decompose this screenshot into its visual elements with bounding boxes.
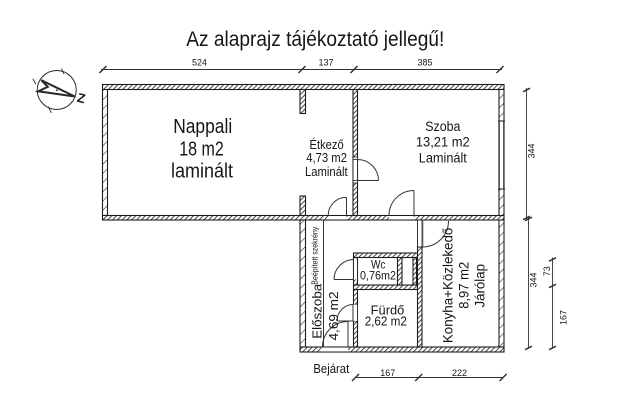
svg-text:167: 167 xyxy=(559,310,569,325)
svg-text:Konyha+Közlekedő: Konyha+Közlekedő xyxy=(441,228,456,344)
svg-text:4,73 m2: 4,73 m2 xyxy=(306,151,347,165)
svg-text:524: 524 xyxy=(192,58,207,68)
svg-text:73: 73 xyxy=(542,266,552,276)
svg-text:385: 385 xyxy=(417,58,432,68)
svg-text:344: 344 xyxy=(527,143,537,158)
svg-text:0,76m2: 0,76m2 xyxy=(360,270,396,282)
svg-text:Előszoba: Előszoba xyxy=(310,283,325,339)
svg-text:Bejárat: Bejárat xyxy=(313,362,349,376)
svg-text:Laminált: Laminált xyxy=(419,150,467,165)
svg-text:13,21 m2: 13,21 m2 xyxy=(416,135,470,150)
svg-text:4,69 m2: 4,69 m2 xyxy=(326,292,341,341)
svg-text:8,97 m2: 8,97 m2 xyxy=(457,262,472,309)
svg-text:Étkező: Étkező xyxy=(310,137,344,152)
svg-text:Beépített szekrény: Beépített szekrény xyxy=(311,227,320,285)
svg-text:137: 137 xyxy=(318,58,333,68)
svg-text:222: 222 xyxy=(452,368,467,378)
svg-text:Laminált: Laminált xyxy=(305,165,348,179)
svg-text:Nappali: Nappali xyxy=(173,116,232,138)
svg-text:2,62 m2: 2,62 m2 xyxy=(365,315,407,329)
svg-text:167: 167 xyxy=(380,368,395,378)
svg-text:344: 344 xyxy=(529,272,539,287)
svg-text:18 m2: 18 m2 xyxy=(179,138,224,160)
svg-text:Járólap: Járólap xyxy=(473,264,488,308)
svg-text:laminált: laminált xyxy=(171,161,233,183)
svg-text:Szoba: Szoba xyxy=(425,119,461,134)
svg-text:Az alaprajz tájékoztató jelleg: Az alaprajz tájékoztató jellegű! xyxy=(186,28,444,51)
